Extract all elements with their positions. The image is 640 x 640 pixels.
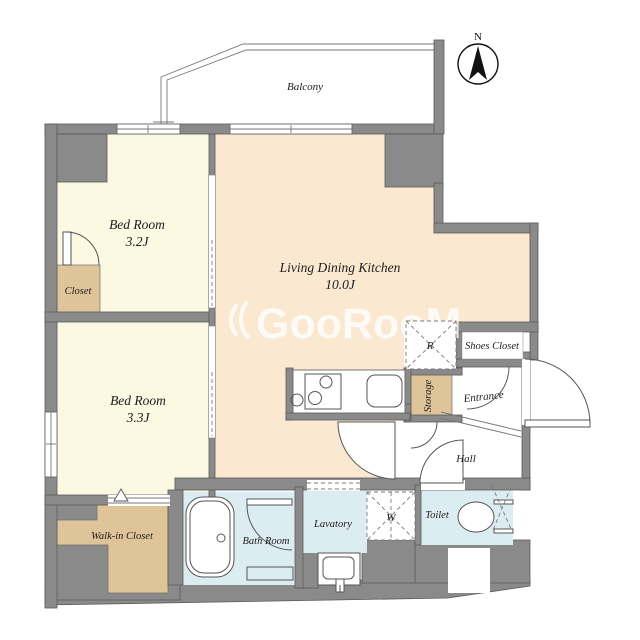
kitchen-sink	[367, 375, 402, 407]
bedroom2-size: 3.3J	[126, 410, 151, 425]
window-bedroom2	[45, 412, 57, 477]
sliding-door-bedroom2	[209, 326, 216, 438]
entrance-label: Entrance	[462, 389, 504, 405]
balcony-label: Balcony	[287, 81, 323, 93]
north-label: N	[474, 31, 482, 43]
stove	[305, 374, 341, 409]
entrance-door	[525, 359, 590, 427]
window-bedroom1	[117, 124, 180, 134]
pipe-space	[448, 548, 490, 593]
toilet-label: Toilet	[425, 510, 450, 521]
lavatory-label: Lavatory	[313, 519, 352, 530]
ldk-size: 10.0J	[325, 277, 356, 292]
window-ldk	[230, 124, 352, 134]
storage-label: Storage	[423, 379, 434, 412]
sliding-door-bedroom1	[209, 175, 216, 308]
walkin-closet-label: Walk-in Closet	[91, 531, 154, 542]
balcony: Balcony	[153, 44, 434, 126]
kitchen-counter	[291, 370, 405, 413]
floor-plan: Balcony N	[0, 0, 640, 640]
entrance-doorway	[522, 359, 530, 425]
bathroom-label: Bath Room	[243, 536, 290, 547]
refrigerator-label: R	[426, 340, 434, 352]
bedroom2-name: Bed Room	[110, 393, 166, 408]
bedroom1-name: Bed Room	[109, 217, 165, 232]
storage-door	[411, 422, 437, 448]
ldk-name: Living Dining Kitchen	[279, 260, 401, 275]
closet-label: Closet	[65, 286, 93, 297]
washer-label: W	[386, 512, 396, 524]
shoes-closet-label: Shoes Closet	[465, 341, 520, 352]
lavatory-opening	[307, 480, 360, 491]
hall-label: Hall	[455, 453, 476, 465]
north-compass-icon: N	[458, 31, 498, 84]
bedroom1-size: 3.2J	[125, 234, 150, 249]
